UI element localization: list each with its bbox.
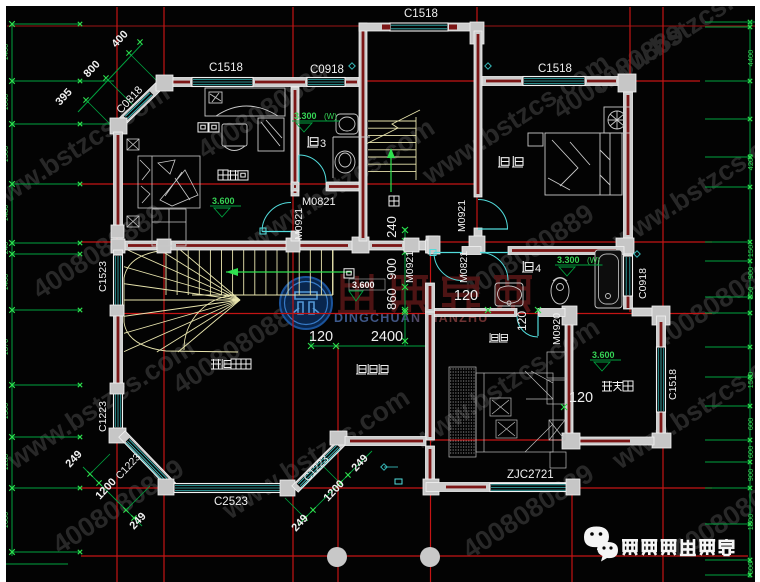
svg-text:150: 150 — [746, 245, 755, 258]
svg-text:3.600: 3.600 — [592, 350, 615, 360]
svg-text:M0921: M0921 — [404, 251, 416, 283]
svg-text:C1518: C1518 — [404, 8, 438, 20]
svg-text:600: 600 — [746, 446, 755, 459]
svg-text:3: 3 — [320, 138, 326, 150]
svg-text:4: 4 — [535, 263, 541, 275]
svg-text:900: 900 — [746, 267, 755, 280]
svg-text:120: 120 — [515, 311, 529, 331]
svg-text:240: 240 — [384, 216, 399, 238]
svg-text:3.600: 3.600 — [352, 280, 375, 290]
svg-text:600: 600 — [746, 562, 755, 575]
svg-text:C1518: C1518 — [209, 62, 243, 74]
svg-text:4200: 4200 — [746, 154, 755, 171]
svg-text:860: 860 — [384, 288, 399, 310]
svg-text:1500: 1500 — [746, 372, 755, 389]
svg-text:M0821: M0821 — [458, 251, 470, 283]
svg-text:C2523: C2523 — [214, 496, 248, 508]
svg-text:120: 120 — [569, 390, 593, 406]
svg-text:C1223: C1223 — [97, 401, 109, 432]
svg-text:C1518: C1518 — [667, 369, 679, 400]
svg-text:900: 900 — [746, 469, 755, 482]
svg-text:C1523: C1523 — [97, 261, 109, 292]
svg-text:ZJC2721: ZJC2721 — [507, 469, 554, 481]
svg-text:C1518: C1518 — [538, 63, 572, 75]
svg-text:2400: 2400 — [371, 329, 403, 345]
svg-text:M0920: M0920 — [551, 313, 563, 345]
svg-text:3.600: 3.600 — [212, 196, 235, 206]
svg-text:900: 900 — [384, 258, 399, 280]
svg-text:C0918: C0918 — [637, 268, 649, 299]
svg-text:120: 120 — [454, 288, 478, 304]
svg-text:(W): (W) — [587, 256, 600, 265]
svg-text:120: 120 — [309, 329, 333, 345]
svg-text:600: 600 — [746, 418, 755, 431]
svg-text:M0921: M0921 — [293, 208, 305, 240]
svg-text:M0821: M0821 — [302, 196, 336, 208]
svg-text:3.300: 3.300 — [557, 255, 580, 265]
svg-text:M0921: M0921 — [456, 200, 468, 232]
svg-text:C0918: C0918 — [310, 64, 344, 76]
svg-text:(W): (W) — [324, 112, 337, 121]
svg-text:4400: 4400 — [746, 50, 755, 67]
svg-text:150: 150 — [746, 287, 755, 300]
svg-text:1800: 1800 — [746, 514, 755, 531]
svg-text:3.300: 3.300 — [294, 111, 317, 121]
